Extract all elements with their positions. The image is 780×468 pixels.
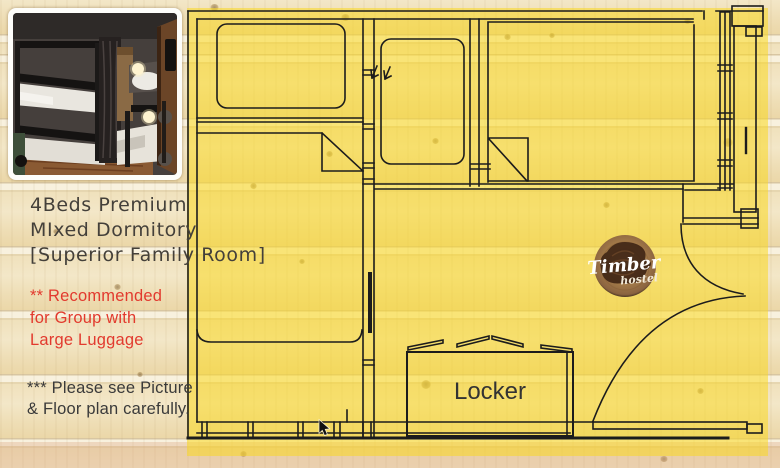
bed-middle <box>371 39 464 164</box>
recommend-note: ** Recommended for Group with Large Lugg… <box>30 285 162 351</box>
logo-subtitle: hostel <box>620 271 659 287</box>
note-line-2: & Floor plan carefully. <box>27 399 193 420</box>
outer-walls <box>188 11 763 438</box>
locker-label: Locker <box>454 378 526 405</box>
bed-top-left <box>217 24 345 108</box>
title-line-1: 4Beds Premium <box>30 193 266 218</box>
left-room-divider <box>197 118 363 122</box>
upper-band-bottom-wall <box>375 184 758 224</box>
side-cabinet <box>734 26 758 228</box>
recommend-line-2: for Group with <box>30 307 162 329</box>
caution-note: *** Please see Picture & Floor plan care… <box>27 378 193 419</box>
bunk-ladder <box>718 12 732 190</box>
note-line-1: *** Please see Picture <box>27 378 193 399</box>
hostel-logo: Timber hostel <box>587 235 664 297</box>
bed-top-right <box>488 22 694 182</box>
title-line-2: MIxed Dormitory <box>30 218 266 243</box>
recommend-line-3: Large Luggage <box>30 329 162 351</box>
recommend-line-1: ** Recommended <box>30 285 162 307</box>
screenshot-root: 4Beds Premium MIxed Dormitory [Superior … <box>0 0 780 468</box>
door-handle-block <box>747 424 762 433</box>
interior-wall-left <box>363 19 374 438</box>
listing-title: 4Beds Premium MIxed Dormitory [Superior … <box>30 193 266 268</box>
interior-wall-middle <box>470 19 490 186</box>
door-leaf <box>593 422 747 429</box>
title-line-3: [Superior Family Room] <box>30 243 266 268</box>
